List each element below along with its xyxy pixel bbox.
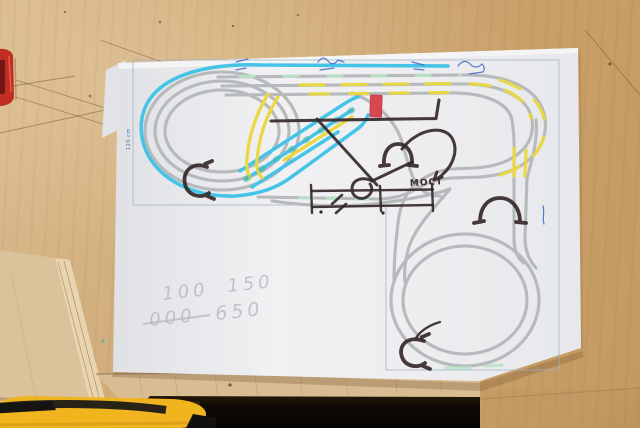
utility-knife — [0, 396, 216, 428]
photo-canvas: 120 cm — [0, 0, 640, 428]
paper — [113, 48, 581, 381]
bridge-label: МОСТ — [410, 177, 444, 189]
paper-sheet — [102, 48, 584, 391]
dimension-label: 120 cm — [126, 128, 132, 150]
photo-scene: { "photo": { "bridge_label": "МОСТ", "di… — [0, 0, 640, 428]
red-tool — [0, 49, 16, 106]
red-rectangle-marker — [370, 95, 383, 117]
